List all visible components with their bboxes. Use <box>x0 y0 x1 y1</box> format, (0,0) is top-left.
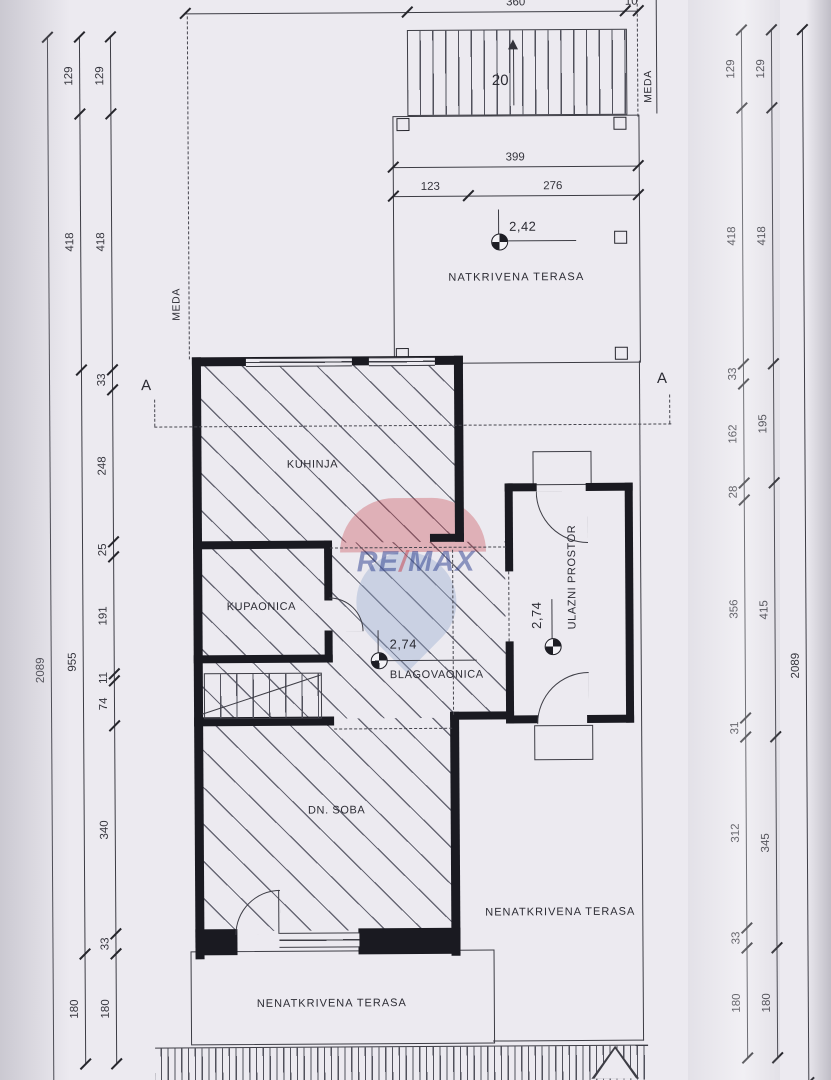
section-elbow-right <box>669 394 670 423</box>
wall-kitchen-stub <box>430 534 464 542</box>
wall-entry-left-upper <box>505 483 514 571</box>
wall-bath-top <box>193 541 332 550</box>
room-label-open-terrace-bottom: NENATKRIVENA TERASA <box>257 997 407 1010</box>
door-leaf-dnsoba <box>278 890 280 934</box>
window-top-left <box>246 357 352 367</box>
dimension-value: 33 <box>96 373 108 386</box>
level-value-terrace: 2,42 <box>509 219 536 234</box>
dimension-line-top-stairs <box>185 11 638 15</box>
paper-sheet: RE/MAX N <box>0 0 831 1080</box>
dimension-value: 31 <box>729 721 741 734</box>
wall-entry-connect <box>450 711 514 719</box>
dimension-value: 415 <box>758 600 770 619</box>
dimension-value: 33 <box>730 932 742 945</box>
terrace-pillar <box>615 347 628 360</box>
unit-hatch-dnsoba <box>199 718 452 932</box>
dimension-line-right-outer <box>802 30 810 1080</box>
dimension-line-right-inner <box>741 30 748 1058</box>
dimension-line-left-inner <box>110 37 117 1064</box>
wall-dnsoba-right <box>450 712 460 956</box>
door-arc-entry-top <box>536 491 588 543</box>
level-marker-entry <box>545 638 562 655</box>
room-label-open-terrace-right: NENATKRIVENA TERASA <box>485 906 635 919</box>
door-arc-entry-bottom <box>537 672 589 724</box>
dimension-value: 180 <box>731 993 743 1012</box>
dimension-value: 180 <box>100 999 112 1018</box>
section-elbow-left <box>154 400 155 427</box>
boundary-label-meda-left: MEDA <box>170 288 182 321</box>
dimension-value: 345 <box>760 833 772 852</box>
bottom-retaining-strip <box>155 1045 648 1080</box>
wall-entry-bottom-left <box>506 715 538 723</box>
dimension-value: 195 <box>757 414 769 433</box>
dimension-line-left-middle <box>79 37 86 1064</box>
dimension-value: 248 <box>96 456 108 475</box>
boundary-meda-left-line <box>187 16 190 359</box>
dimension-value: 10 <box>625 0 638 8</box>
floor-plan-canvas: RE/MAX N <box>0 0 831 1080</box>
section-label-a-left: A <box>141 377 151 394</box>
level-value-dining: 2,74 <box>390 636 417 651</box>
plot-right-line <box>639 361 645 1041</box>
terrace-pillar <box>396 118 409 131</box>
dimension-value: 191 <box>97 606 109 625</box>
stairs-count-label: 20 <box>492 72 509 89</box>
room-label-dining: BLAGOVAONICA <box>390 669 484 682</box>
room-label-covered-terrace: NATKRIVENA TERASA <box>448 271 584 284</box>
room-label-kitchen: KUHINJA <box>287 458 338 470</box>
room-label-bathroom: KUPAONICA <box>227 601 296 613</box>
boundary-meda-right-line <box>637 0 639 117</box>
dimension-value: 129 <box>63 66 75 85</box>
window-top-right <box>369 357 435 366</box>
stairs-up-arrow-icon <box>508 39 518 49</box>
level-marker-terrace <box>491 233 508 250</box>
dimension-value: 312 <box>730 823 742 842</box>
dimension-value: 340 <box>99 820 111 839</box>
dimension-value: 180 <box>69 999 81 1018</box>
dimension-value: 11 <box>98 671 110 683</box>
dimension-value: 418 <box>95 232 107 251</box>
wall-bottom-left-corner <box>195 929 237 955</box>
dimension-value: 129 <box>94 66 106 85</box>
dimension-value: 180 <box>761 993 773 1012</box>
dimension-value: 28 <box>728 485 740 498</box>
terrace-pillar <box>614 231 627 244</box>
dimension-value: 356 <box>728 599 740 618</box>
level-stem-entry <box>551 599 553 639</box>
dimension-value: 955 <box>67 652 79 671</box>
dimension-line-left-outer <box>47 37 55 1080</box>
wall-entry-right <box>625 483 634 723</box>
entry-stoop-bottom <box>534 725 593 760</box>
level-stem-terrace <box>498 209 500 235</box>
dimension-value: 129 <box>755 59 767 78</box>
dimension-value: 74 <box>98 697 110 710</box>
level-value-entry: 2,74 <box>529 602 544 629</box>
dimension-value: 2089 <box>35 657 47 683</box>
dimension-value: 418 <box>756 226 768 245</box>
dimension-value: 25 <box>97 543 109 556</box>
dimension-value: 162 <box>727 424 739 443</box>
wall-entry-bottom-right <box>587 715 634 723</box>
terrace-pillar <box>613 117 626 130</box>
dimension-value: 129 <box>725 59 737 78</box>
dimension-value: 33 <box>727 368 739 381</box>
neighbor-top-line <box>656 0 658 114</box>
entry-stoop-top <box>532 451 591 485</box>
wall-entry-left-lower <box>506 641 515 723</box>
wall-kitchen-right <box>454 356 464 542</box>
entry-opening-dashed <box>508 571 509 641</box>
unit-hatch-kitchen <box>197 362 456 544</box>
level-marker-dining <box>371 652 388 669</box>
wall-bottom-right <box>358 928 460 955</box>
dimension-line-right-middle <box>771 30 778 1058</box>
plot-bottom-line <box>493 1040 644 1042</box>
wall-bath-right-upper <box>324 541 332 601</box>
dimension-value: 360 <box>506 0 525 8</box>
room-label-entry: ULAZNI PROSTOR <box>566 525 579 630</box>
dimension-value: 399 <box>506 151 525 163</box>
dimension-value: 418 <box>64 232 76 251</box>
dimension-value: 418 <box>726 226 738 245</box>
dimension-value: 123 <box>421 181 440 193</box>
section-label-a-right: A <box>657 370 667 387</box>
dimension-value: 2089 <box>790 653 802 679</box>
dimension-value: 276 <box>543 180 562 192</box>
dimension-value: 33 <box>99 937 111 950</box>
boundary-label-meda-right: MEDA <box>642 70 654 103</box>
window-bottom <box>279 932 359 947</box>
wall-bath-bottom <box>194 655 333 664</box>
room-label-day-room: DN. SOBA <box>308 804 365 816</box>
level-stem-dining <box>378 630 380 654</box>
